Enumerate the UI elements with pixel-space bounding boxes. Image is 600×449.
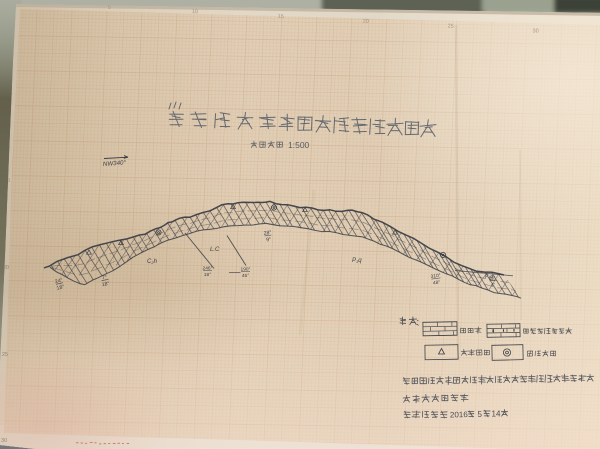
svg-text:18°: 18° (204, 272, 211, 278)
svg-text:30: 30 (1, 438, 7, 444)
svg-text:48°: 48° (433, 280, 441, 287)
svg-text:25: 25 (448, 24, 454, 30)
svg-text:15: 15 (278, 14, 284, 20)
svg-text:2016: 2016 (450, 410, 469, 419)
svg-text:5: 5 (478, 410, 483, 419)
svg-text:1:500: 1:500 (288, 140, 310, 150)
svg-text:9°: 9° (266, 237, 272, 244)
svg-text:5: 5 (108, 5, 111, 11)
svg-text:C2h: C2h (147, 259, 158, 265)
svg-text:P1q: P1q (352, 258, 362, 264)
svg-text:45°: 45° (242, 273, 249, 279)
svg-text:30: 30 (533, 28, 539, 34)
svg-text:L.C: L.C (210, 247, 220, 253)
svg-text:14: 14 (492, 410, 501, 419)
svg-text:25: 25 (2, 352, 8, 358)
svg-text:20: 20 (363, 19, 369, 25)
svg-text:10: 10 (192, 9, 198, 15)
